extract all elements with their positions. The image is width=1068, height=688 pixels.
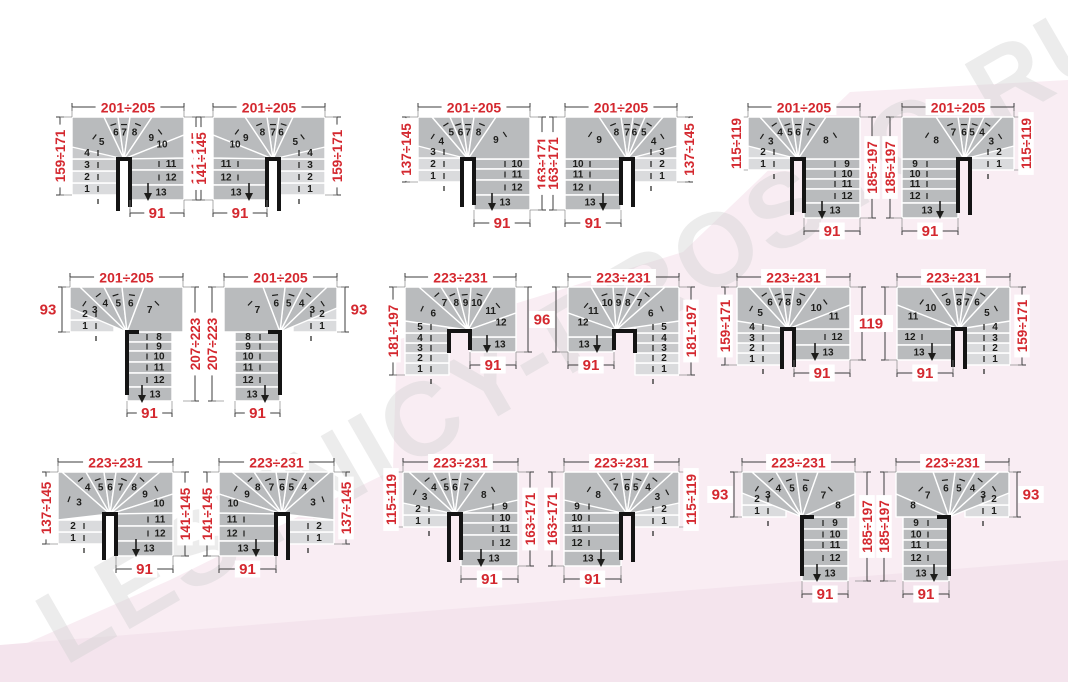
step-number: 1 (415, 516, 421, 527)
line (942, 480, 948, 481)
step-number: 9 (244, 489, 250, 500)
step-number: 7 (925, 490, 931, 501)
dim-label: 223÷231 (88, 455, 143, 471)
step-number: 10 (925, 303, 937, 314)
step-number: 4 (431, 482, 437, 493)
step-number: 12 (904, 332, 916, 343)
dim-label: 163÷171 (544, 488, 560, 551)
step-number: 8 (933, 136, 939, 147)
step-number: 1 (661, 516, 667, 527)
dim-label: 141÷145 (199, 483, 215, 546)
dim-label: 207÷223 (204, 313, 220, 376)
step-entry (279, 159, 325, 171)
step-number: 2 (661, 504, 667, 515)
step-number: 5 (789, 484, 795, 495)
step-number: 11 (243, 363, 254, 374)
step-number: 2 (82, 309, 88, 320)
center-wall (953, 329, 965, 369)
step-number: 3 (310, 497, 316, 508)
svg-text:207÷223: 207÷223 (205, 317, 220, 370)
dim-label: 223÷231 (594, 455, 649, 471)
step-number: 2 (760, 147, 766, 158)
step-entry (403, 515, 449, 527)
step-number: 12 (220, 173, 232, 184)
step-flight (802, 529, 848, 540)
step-number: 6 (279, 482, 285, 493)
step-entry (633, 515, 679, 527)
center-wall (449, 331, 470, 353)
dim-label: 93 (40, 302, 57, 319)
dim-label: 115÷119 (1018, 112, 1034, 175)
step-entry (279, 183, 325, 195)
step-number: 10 (499, 513, 511, 524)
dim-label: 91 (585, 215, 602, 232)
step-number: 7 (613, 482, 619, 493)
step-number: 5 (633, 482, 639, 493)
step-flight (127, 373, 172, 387)
svg-text:159÷171: 159÷171 (53, 129, 68, 182)
center-wall (958, 159, 970, 215)
step-exit (470, 337, 516, 352)
step-number: 3 (992, 333, 998, 344)
step-number: 1 (82, 321, 88, 332)
center-wall (614, 331, 635, 353)
step-number: 8 (260, 127, 266, 138)
line (129, 295, 135, 296)
step-number: 13 (822, 348, 834, 359)
step-number: 9 (493, 135, 499, 146)
step-number: 6 (113, 127, 119, 138)
step-number: 6 (452, 482, 458, 493)
step-number: 1 (319, 321, 325, 332)
step-number: 3 (749, 333, 755, 344)
step-number: 12 (909, 191, 921, 202)
dim-label: 119 (859, 316, 883, 333)
svg-text:185÷197: 185÷197 (877, 500, 892, 552)
step-number: 7 (463, 482, 469, 493)
dim-label: 223÷231 (433, 270, 488, 286)
step-number: 12 (153, 375, 165, 386)
dim-label: 201÷205 (777, 100, 832, 116)
line (616, 294, 622, 295)
step-flight (127, 362, 172, 373)
dim-label: 91 (917, 365, 934, 382)
dim-label: 201÷205 (99, 270, 154, 286)
stair-plan-svg: 12345678910111213223÷2319193185÷197 (853, 442, 1053, 652)
dim-label: 137÷145 (38, 477, 54, 540)
step-number: 4 (417, 333, 423, 344)
step-number: 7 (637, 298, 643, 309)
dim-label: 223÷231 (766, 270, 821, 286)
step-number: 3 (768, 136, 774, 147)
svg-text:185÷197: 185÷197 (883, 141, 898, 193)
step-number: 5 (116, 299, 122, 310)
step-number: 13 (921, 206, 933, 217)
step-entry (72, 171, 118, 183)
step-number: 11 (842, 179, 853, 190)
dim-label: 159÷171 (52, 125, 68, 188)
step-number: 8 (823, 136, 829, 147)
step-number: 10 (156, 140, 168, 151)
step-number: 13 (913, 348, 925, 359)
step-number: 4 (992, 322, 998, 333)
svg-text:137÷145: 137÷145 (399, 123, 414, 176)
step-number: 9 (832, 518, 838, 529)
step-number: 13 (230, 188, 242, 199)
step-number: 6 (278, 127, 284, 138)
dim-label: 159÷171 (717, 295, 733, 358)
dim-label: 159÷171 (329, 125, 345, 188)
svg-text:159÷171: 159÷171 (718, 299, 733, 352)
step-number: 13 (829, 206, 841, 217)
step-number: 1 (749, 354, 755, 365)
step-entry (748, 158, 792, 170)
step-number: 13 (143, 544, 155, 555)
dim-label: 91 (583, 357, 600, 374)
step-number: 10 (910, 530, 922, 541)
step-entry (58, 520, 104, 532)
dim-label: 91 (481, 571, 498, 588)
svg-text:141÷145: 141÷145 (200, 487, 215, 540)
step-number: 13 (915, 569, 927, 580)
step-number: 12 (242, 375, 254, 386)
step-number: 8 (625, 298, 631, 309)
step-entry (279, 171, 325, 183)
step-number: 10 (571, 513, 583, 524)
step-number: 1 (307, 184, 313, 195)
dim-label: 91 (149, 205, 166, 222)
step-number: 6 (767, 297, 773, 308)
step-number: 9 (148, 133, 154, 144)
line (462, 294, 468, 295)
step-number: 8 (785, 297, 791, 308)
step-number: 5 (787, 127, 793, 138)
step-number: 11 (485, 306, 496, 317)
step-number: 1 (430, 171, 436, 182)
step-number: 11 (500, 524, 511, 535)
step-number: 9 (243, 133, 249, 144)
step-number: 4 (299, 299, 305, 310)
step-number: 2 (661, 353, 667, 364)
step-number: 5 (969, 127, 975, 138)
stair-plan-svg: 12345678910111213201÷2059193207÷223 (181, 257, 381, 467)
step-number: 13 (237, 544, 249, 555)
step-number: 2 (659, 159, 665, 170)
dim-label: 223÷231 (249, 455, 304, 471)
step-number: 3 (309, 305, 315, 316)
step-number: 6 (632, 127, 638, 138)
step-number: 7 (255, 305, 261, 316)
step-number: 4 (776, 484, 782, 495)
svg-text:137÷145: 137÷145 (339, 481, 354, 534)
dim-label: 137÷145 (338, 477, 354, 540)
step-number: 2 (430, 159, 436, 170)
step-exit (568, 337, 614, 352)
step-number: 4 (103, 299, 109, 310)
step-number: 5 (956, 484, 962, 495)
step-entry (405, 363, 449, 375)
center-wall (621, 159, 633, 207)
step-number: 8 (255, 482, 261, 493)
step-number: 8 (614, 127, 620, 138)
step-number: 4 (645, 482, 651, 493)
step-entry (405, 333, 449, 343)
step-number: 6 (128, 299, 134, 310)
dim-label: 223÷231 (925, 455, 980, 471)
step-flight (235, 342, 280, 351)
step-number: 2 (84, 172, 90, 183)
step-number: 3 (307, 160, 313, 171)
center-wall (267, 159, 279, 211)
step-entry (635, 353, 679, 363)
step-number: 1 (70, 533, 76, 544)
step-entry (58, 532, 104, 544)
step-number: 2 (417, 353, 423, 364)
step-number: 7 (951, 127, 957, 138)
dim-label: 91 (922, 223, 939, 240)
step-number: 6 (430, 308, 436, 319)
dim-label: 163÷171 (545, 132, 561, 195)
center-wall (792, 159, 804, 215)
stair-diagram-8: 12345678910111213201÷2059193207÷223 (181, 257, 381, 467)
step-number: 13 (494, 340, 506, 351)
stair-diagram-18: 12345678910111213223÷2319193185÷197 (853, 442, 1053, 652)
step-number: 2 (415, 504, 421, 515)
step-number: 8 (481, 490, 487, 501)
step-number: 11 (573, 170, 584, 181)
svg-text:137÷145: 137÷145 (682, 123, 697, 176)
step-number: 7 (821, 490, 827, 501)
step-number: 3 (417, 343, 423, 354)
step-entry (965, 333, 1010, 343)
step-number: 4 (302, 482, 308, 493)
page: { "page": { "colors": { "background": "#… (0, 0, 1068, 682)
svg-text:141÷145: 141÷145 (194, 132, 209, 185)
step-number: 4 (661, 333, 667, 344)
step-number: 9 (502, 502, 508, 513)
step-entry (288, 520, 334, 532)
step-number: 5 (661, 322, 667, 333)
step-number: 7 (777, 297, 783, 308)
dim-label: 91 (494, 215, 511, 232)
svg-text:115÷119: 115÷119 (684, 474, 699, 525)
step-number: 3 (76, 497, 82, 508)
svg-text:115÷119: 115÷119 (729, 118, 744, 169)
step-number: 11 (911, 540, 922, 551)
step-entry (405, 353, 449, 363)
stair-diagram-14: 12345678910111213223÷23191137÷145141÷145 (178, 442, 378, 652)
step-number: 9 (945, 297, 951, 308)
step-entry (737, 343, 782, 353)
dim-label: 115÷119 (728, 112, 744, 175)
center-wall (449, 514, 461, 562)
step-number: 6 (943, 484, 949, 495)
step-exit (897, 345, 953, 360)
step-number: 1 (84, 184, 90, 195)
step-number: 12 (577, 318, 589, 329)
step-entry (633, 158, 677, 170)
dim-label: 91 (817, 586, 834, 603)
dim-label: 201÷205 (594, 100, 649, 116)
dim-label: 201÷205 (931, 100, 986, 116)
step-entry (405, 343, 449, 353)
step-number: 12 (910, 553, 922, 564)
step-number: 8 (595, 490, 601, 501)
dim-label: 185÷197 (882, 136, 898, 199)
dim-label: 137÷145 (398, 118, 414, 181)
step-number: 12 (154, 529, 166, 540)
step-flight (802, 550, 848, 566)
step-number: 7 (964, 297, 970, 308)
step-number: 6 (802, 484, 808, 495)
dim-label: 91 (249, 405, 266, 422)
step-number: 4 (651, 136, 657, 147)
step-number: 12 (829, 553, 841, 564)
step-number: 7 (121, 127, 127, 138)
dim-label: 91 (485, 357, 502, 374)
step-number: 6 (795, 127, 801, 138)
step-number: 10 (811, 303, 823, 314)
step-number: 13 (584, 198, 596, 209)
step-entry (737, 333, 782, 343)
step-number: 2 (996, 147, 1002, 158)
step-number: 13 (499, 198, 511, 209)
step-number: 7 (270, 127, 276, 138)
svg-text:181÷197: 181÷197 (386, 305, 401, 357)
svg-text:159÷171: 159÷171 (330, 129, 345, 182)
step-number: 12 (226, 529, 238, 540)
step-entry (635, 333, 679, 343)
step-number: 6 (273, 299, 279, 310)
step-number: 4 (439, 136, 445, 147)
step-number: 10 (471, 298, 483, 309)
dim-label: 91 (814, 365, 831, 382)
step-number: 8 (453, 298, 459, 309)
step-number: 9 (796, 297, 802, 308)
svg-text:163÷171: 163÷171 (546, 137, 561, 190)
center-wall (782, 329, 794, 369)
line (272, 295, 278, 296)
step-number: 10 (153, 352, 165, 363)
step-number: 12 (499, 538, 511, 549)
step-number: 1 (996, 159, 1002, 170)
step-number: 8 (476, 127, 482, 138)
dim-label: 223÷231 (926, 270, 981, 286)
step-number: 13 (488, 554, 500, 565)
step-number: 13 (578, 340, 590, 351)
step-number: 8 (131, 482, 137, 493)
step-number: 1 (754, 506, 760, 517)
step-number: 11 (910, 179, 921, 190)
dim-label: 91 (136, 561, 153, 578)
stair-diagram-16: 12345678910111213223÷23191115÷119163÷171 (523, 442, 723, 652)
dim-label: 93 (1023, 487, 1040, 504)
step-number: 6 (458, 127, 464, 138)
dim-label: 141÷145 (193, 127, 209, 190)
svg-text:159÷171: 159÷171 (1015, 299, 1030, 352)
step-number: 7 (147, 305, 153, 316)
step-number: 1 (659, 171, 665, 182)
dim-label: 159÷171 (1014, 295, 1030, 358)
dim-label: 137÷145 (681, 118, 697, 181)
step-number: 3 (661, 343, 667, 354)
dim-label: 185÷197 (876, 495, 892, 558)
step-number: 5 (641, 127, 647, 138)
step-number: 5 (98, 482, 104, 493)
step-entry (72, 159, 118, 171)
step-number: 5 (286, 299, 292, 310)
dim-label: 91 (239, 561, 256, 578)
step-entry (970, 158, 1014, 170)
step-number: 7 (806, 127, 812, 138)
step-number: 6 (961, 127, 967, 138)
step-number: 3 (988, 136, 994, 147)
step-number: 6 (974, 297, 980, 308)
step-number: 8 (132, 127, 138, 138)
step-number: 5 (984, 308, 990, 319)
step-entry (737, 353, 782, 365)
step-number: 5 (757, 308, 763, 319)
stair-plan-svg: 12345678910111213223÷23191137÷145141÷145 (178, 442, 378, 652)
step-number: 4 (85, 482, 91, 493)
step-number: 9 (596, 135, 602, 146)
step-number: 11 (154, 363, 165, 374)
step-number: 6 (107, 482, 113, 493)
line (803, 480, 809, 481)
step-number: 12 (571, 538, 583, 549)
step-number: 2 (749, 343, 755, 354)
svg-text:115÷119: 115÷119 (1019, 118, 1034, 169)
dim-label: 201÷205 (253, 270, 308, 286)
step-entry (288, 532, 334, 544)
dim-label: 201÷205 (447, 100, 502, 116)
svg-text:137÷145: 137÷145 (39, 481, 54, 534)
step-number: 11 (829, 312, 840, 323)
step-number: 1 (991, 506, 997, 517)
step-number: 5 (417, 322, 423, 333)
step-number: 1 (316, 533, 322, 544)
step-number: 9 (616, 298, 622, 309)
step-number: 11 (572, 524, 583, 535)
step-number: 9 (463, 298, 469, 309)
step-entry (418, 158, 462, 170)
dim-label: 91 (918, 586, 935, 603)
step-entry (633, 170, 677, 182)
step-number: 2 (319, 309, 325, 320)
dim-label: 91 (584, 571, 601, 588)
step-entry (965, 353, 1010, 365)
step-number: 9 (142, 489, 148, 500)
step-number: 1 (417, 364, 423, 375)
dim-label: 223÷231 (433, 455, 488, 471)
step-number: 5 (289, 482, 295, 493)
stair-diagram-12: 12345678910111213223÷23191159÷171119 (854, 257, 1054, 467)
step-number: 2 (992, 343, 998, 354)
step-number: 7 (269, 482, 275, 493)
step-number: 4 (749, 322, 755, 333)
step-number: 4 (307, 148, 313, 159)
step-number: 13 (149, 390, 161, 401)
step-number: 12 (495, 318, 507, 329)
step-number: 11 (908, 312, 919, 323)
center-wall (621, 514, 633, 562)
step-number: 8 (956, 297, 962, 308)
step-number: 11 (227, 515, 238, 526)
svg-text:115÷119: 115÷119 (384, 474, 399, 525)
step-flight (902, 159, 958, 169)
step-number: 5 (448, 127, 454, 138)
step-number: 10 (829, 530, 841, 541)
